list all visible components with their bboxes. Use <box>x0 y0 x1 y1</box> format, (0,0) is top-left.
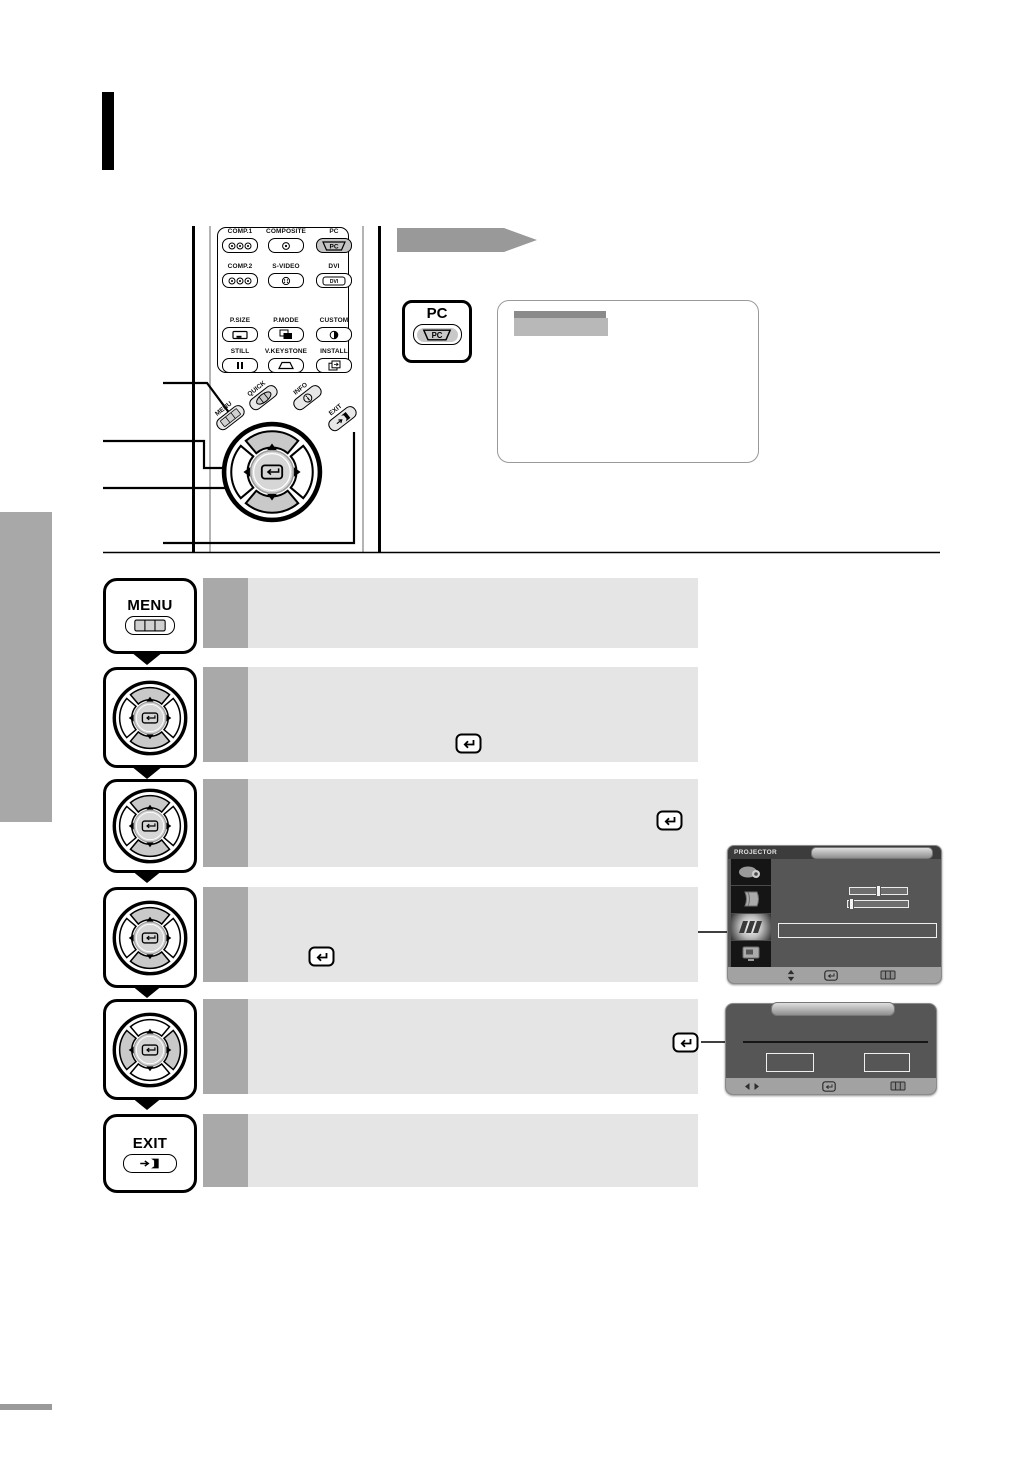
step2-dpad-key <box>103 667 197 768</box>
dpad-navigation <box>221 421 323 523</box>
page-footer-bar <box>0 1404 52 1410</box>
step4-number-strip <box>203 887 248 982</box>
osd-option-box-1 <box>766 1053 814 1072</box>
step5-dpad-key <box>103 999 197 1100</box>
custom-label: CUSTOM <box>320 317 349 325</box>
osd-top-pill <box>771 1002 895 1016</box>
step1-number-strip <box>203 578 248 648</box>
pc-callout-button: PC <box>413 324 462 345</box>
step4-dpad-key <box>103 887 197 988</box>
pc-label: PC <box>329 228 338 236</box>
osd-selection-box <box>778 923 937 938</box>
svideo-port-icon <box>281 276 291 286</box>
step1-menu-key: MENU <box>103 578 197 654</box>
down-arrow-icon <box>131 652 163 665</box>
step1-text-area <box>248 578 698 648</box>
comp1-label: COMP.1 <box>228 228 253 236</box>
pmode-label: P.MODE <box>273 317 298 325</box>
osd-hintbar <box>726 1078 936 1094</box>
svg-text:DVI: DVI <box>330 279 339 285</box>
remote-edge-left <box>209 226 211 552</box>
enter-icon <box>308 946 335 967</box>
enter-icon <box>824 970 838 981</box>
svg-text:PC: PC <box>432 331 443 340</box>
down-arrow-icon <box>131 766 163 779</box>
menu-bars-icon <box>131 619 169 632</box>
osd-title: PROJECTOR <box>728 849 777 856</box>
osd-option-box-2 <box>864 1053 910 1072</box>
remote-frame-left <box>192 226 195 552</box>
pc-button-callout: PC PC <box>402 300 472 363</box>
three-rca-icon <box>227 242 253 250</box>
exit-key-label: EXIT <box>133 1135 168 1152</box>
dvi-label: DVI <box>328 263 339 271</box>
three-rca-icon <box>227 277 253 285</box>
remote-composite-button: COMPOSITE <box>263 228 309 253</box>
step2-text-area <box>248 667 698 762</box>
osd-slider-1 <box>849 887 908 895</box>
svg-text:PC: PC <box>329 243 338 250</box>
remote-custom-button: CUSTOM <box>311 317 357 342</box>
step2-number-strip <box>203 667 248 762</box>
move-updown-icon <box>786 969 796 982</box>
display-icon <box>731 941 771 968</box>
section-banner-arrow <box>397 228 537 252</box>
down-arrow-icon <box>131 1097 163 1110</box>
menu-bars-icon <box>880 970 896 980</box>
dvi-port-icon: DVI <box>322 276 346 286</box>
picture-size-icon <box>232 330 248 340</box>
note-heading-bar-light <box>514 318 608 336</box>
remote-info-button: INFO <box>280 371 331 417</box>
menu-bars-icon <box>890 1081 906 1091</box>
exit-door-icon <box>130 1157 170 1170</box>
single-rca-icon <box>281 241 291 251</box>
slider-knob <box>876 885 881 897</box>
step3-number-strip <box>203 779 248 867</box>
setup-icon-selected <box>731 914 771 941</box>
enter-icon <box>455 733 482 754</box>
composite-label: COMPOSITE <box>266 228 306 236</box>
remote-still-button: STILL <box>217 348 263 373</box>
remote-edge-right <box>362 226 364 552</box>
osd-top-pill <box>811 847 933 859</box>
dpad-updown-icon <box>112 788 188 864</box>
remote-svideo-button: S-VIDEO <box>263 263 309 288</box>
remote-psize-button: P.SIZE <box>217 317 263 342</box>
step4-instruction-box <box>203 887 698 982</box>
step5-number-strip <box>203 999 248 1094</box>
page-icon <box>731 886 771 913</box>
step3-text-area <box>248 779 698 867</box>
remote-pc-button: PC PC <box>311 228 357 253</box>
pc-port-icon: PC <box>321 241 347 251</box>
install-label: INSTALL <box>320 348 348 356</box>
slider-knob <box>849 898 854 910</box>
osd-slider-2 <box>847 900 909 908</box>
comp2-label: COMP.2 <box>228 263 253 271</box>
step5-text-area <box>248 999 698 1094</box>
step6-instruction-box <box>203 1114 698 1187</box>
pc-callout-label: PC <box>427 306 448 322</box>
step6-number-strip <box>203 1114 248 1187</box>
dpad-updown-icon <box>112 680 188 756</box>
remote-quick-button: QUICK <box>236 371 287 417</box>
dpad-updown-icon <box>112 900 188 976</box>
keystone-icon <box>277 361 295 370</box>
step3-dpad-key <box>103 779 197 873</box>
remote-frame-right <box>378 226 381 552</box>
remote-pmode-button: P.MODE <box>263 317 309 342</box>
move-leftright-icon <box>744 1082 760 1091</box>
osd-divider-line <box>743 1041 928 1043</box>
psize-label: P.SIZE <box>230 317 250 325</box>
down-arrow-icon <box>131 985 163 998</box>
remote-vkeystone-button: V.KEYSTONE <box>263 348 309 373</box>
step6-exit-key: EXIT <box>103 1114 197 1193</box>
dpad-leftright-icon <box>112 1012 188 1088</box>
note-box <box>497 300 759 463</box>
osd-hintbar <box>728 967 941 983</box>
remote-comp1-button: COMP.1 <box>217 228 263 253</box>
step2-instruction-box <box>203 667 698 762</box>
still-label: STILL <box>231 348 250 356</box>
svideo-label: S-VIDEO <box>272 263 299 271</box>
enter-icon <box>656 810 683 831</box>
remote-install-button: INSTALL <box>311 348 357 373</box>
picture-mode-icon <box>279 329 293 340</box>
remote-dvi-button: DVI DVI <box>311 263 357 288</box>
osd-icon-column <box>731 859 771 968</box>
section-title-tab <box>102 92 114 170</box>
step4-text-area <box>248 887 698 982</box>
page-margin-bar <box>0 512 52 822</box>
contrast-icon <box>329 330 339 340</box>
pc-port-icon: PC <box>421 329 453 341</box>
remote-comp2-button: COMP.2 <box>217 263 263 288</box>
enter-icon <box>672 1032 699 1053</box>
step3-instruction-box <box>203 779 698 867</box>
step1-instruction-box <box>203 578 698 648</box>
enter-icon <box>822 1081 836 1092</box>
pause-icon <box>236 361 244 370</box>
osd-menu-screenshot: PROJECTOR <box>727 845 942 984</box>
vkeystone-label: V.KEYSTONE <box>265 348 307 356</box>
manual-page: COMP.1 COMPOSITE PC PC COMP.2 S-VIDEO DV… <box>0 0 1035 1459</box>
info-icon <box>300 391 314 405</box>
install-icon <box>328 360 341 371</box>
step6-text-area <box>248 1114 698 1187</box>
projector-icon <box>731 859 771 886</box>
menu-key-label: MENU <box>127 597 172 614</box>
note-heading-bar-dark <box>514 311 606 318</box>
step5-instruction-box <box>203 999 698 1094</box>
osd-confirm-screenshot <box>725 1003 937 1095</box>
down-arrow-icon <box>131 870 163 883</box>
